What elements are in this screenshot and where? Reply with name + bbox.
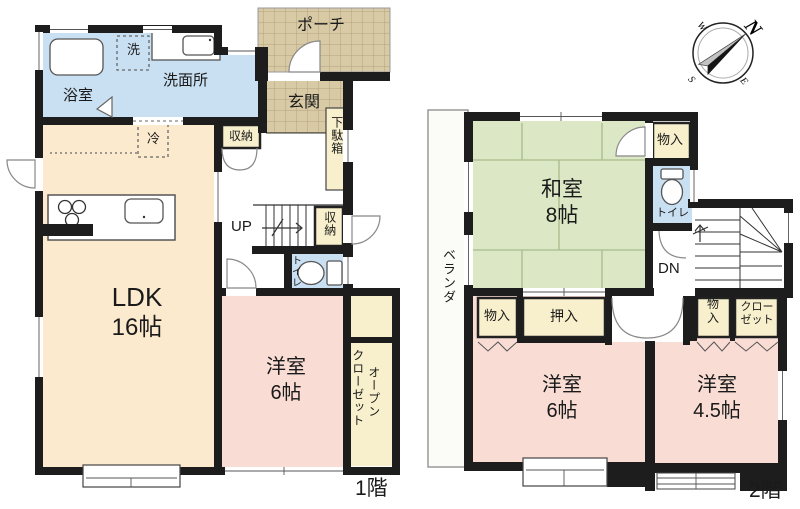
bedroom2f-2-label: 洋室 bbox=[686, 374, 748, 397]
open-closet-label-word1: オープン bbox=[366, 366, 380, 418]
ldk-size-label: 16帖 bbox=[105, 314, 169, 342]
bedroom1f-door bbox=[227, 259, 256, 288]
hall2f-area bbox=[612, 296, 690, 342]
exterior-storage-door bbox=[352, 216, 380, 244]
faucet-dot bbox=[143, 216, 145, 218]
entrance-label: 玄関 bbox=[288, 94, 320, 112]
tatami-room-size-label: 8帖 bbox=[531, 204, 593, 228]
floor2-label: 2階 bbox=[749, 479, 782, 503]
toilet1-tank bbox=[327, 261, 342, 285]
washer-label: 洗 bbox=[127, 43, 140, 58]
bedroom2f-2-size-label: 4.5帖 bbox=[686, 400, 748, 423]
bedroom2f-1-label: 洋室 bbox=[531, 374, 593, 397]
fridge-label: 冷 bbox=[147, 132, 160, 147]
bedroom1f-label: 洋室 bbox=[263, 356, 309, 379]
bedroom2f-1-size-label: 6帖 bbox=[531, 400, 593, 423]
open-closet-label-word2: クローゼット bbox=[350, 349, 364, 427]
tatami-room-label: 和室 bbox=[531, 178, 593, 202]
kitchen-back-door bbox=[7, 160, 35, 188]
porch-label: ポーチ bbox=[297, 17, 345, 35]
closet-label: クローゼット bbox=[736, 301, 778, 327]
stove-burner bbox=[59, 201, 72, 214]
storage-top-label: 物入 bbox=[657, 133, 683, 148]
stairs-down-label: DN bbox=[658, 260, 680, 277]
compass-east-label: E bbox=[737, 75, 750, 88]
storage-right-label: 物入 bbox=[707, 298, 721, 326]
ldk-label: LDK bbox=[105, 283, 169, 313]
closet-divider-wall bbox=[347, 337, 392, 343]
faucet-dot bbox=[209, 39, 211, 41]
oshiire-label: 押入 bbox=[550, 308, 578, 324]
bedroom1-bay-window bbox=[523, 458, 607, 486]
veranda-label: ベランダ bbox=[440, 248, 455, 304]
floor-plan-drawing: N W S E bbox=[0, 0, 800, 509]
toilet1-bowl bbox=[298, 262, 324, 285]
kitchen-half-wall bbox=[43, 224, 93, 236]
stove-burner bbox=[73, 201, 86, 214]
kitchen-sink bbox=[125, 199, 163, 223]
shoe-cabinet-label: 下駄箱 bbox=[329, 116, 343, 155]
toilet1-label: トイレ bbox=[289, 255, 301, 288]
storage-left-label: 物入 bbox=[484, 309, 510, 324]
toilet2-bowl bbox=[662, 180, 683, 205]
bathtub bbox=[50, 39, 103, 75]
compass-south-label: S bbox=[685, 74, 697, 85]
bedroom1f-size-label: 6帖 bbox=[263, 382, 309, 405]
washroom-label: 洗面所 bbox=[163, 72, 208, 89]
toilet2-label: トイレ bbox=[656, 207, 689, 220]
hall-storage-doors bbox=[222, 148, 257, 170]
compass: N W S E bbox=[662, 0, 785, 112]
vanity-sink bbox=[183, 36, 214, 55]
floor1-label: 1階 bbox=[355, 477, 388, 501]
compass-needle-dark bbox=[703, 34, 750, 75]
stair-storage-label: 収納 bbox=[322, 211, 336, 237]
hall-storage-label: 収納 bbox=[229, 130, 253, 144]
stairs-down-arrow bbox=[693, 226, 708, 242]
stairs-down bbox=[693, 208, 782, 288]
floor2-fixtures bbox=[661, 169, 683, 205]
toilet2-door bbox=[659, 231, 686, 258]
stairs-up-label: UP bbox=[231, 218, 252, 235]
bathroom-label: 浴室 bbox=[63, 87, 93, 104]
ldk-bay-window bbox=[83, 465, 180, 487]
toilet2-tank bbox=[661, 169, 683, 179]
floor-plan-canvas: N W S E ポーチ 玄関 下駄箱 浴室 洗 洗面所 収納 冷 LDK 16帖… bbox=[0, 0, 800, 509]
